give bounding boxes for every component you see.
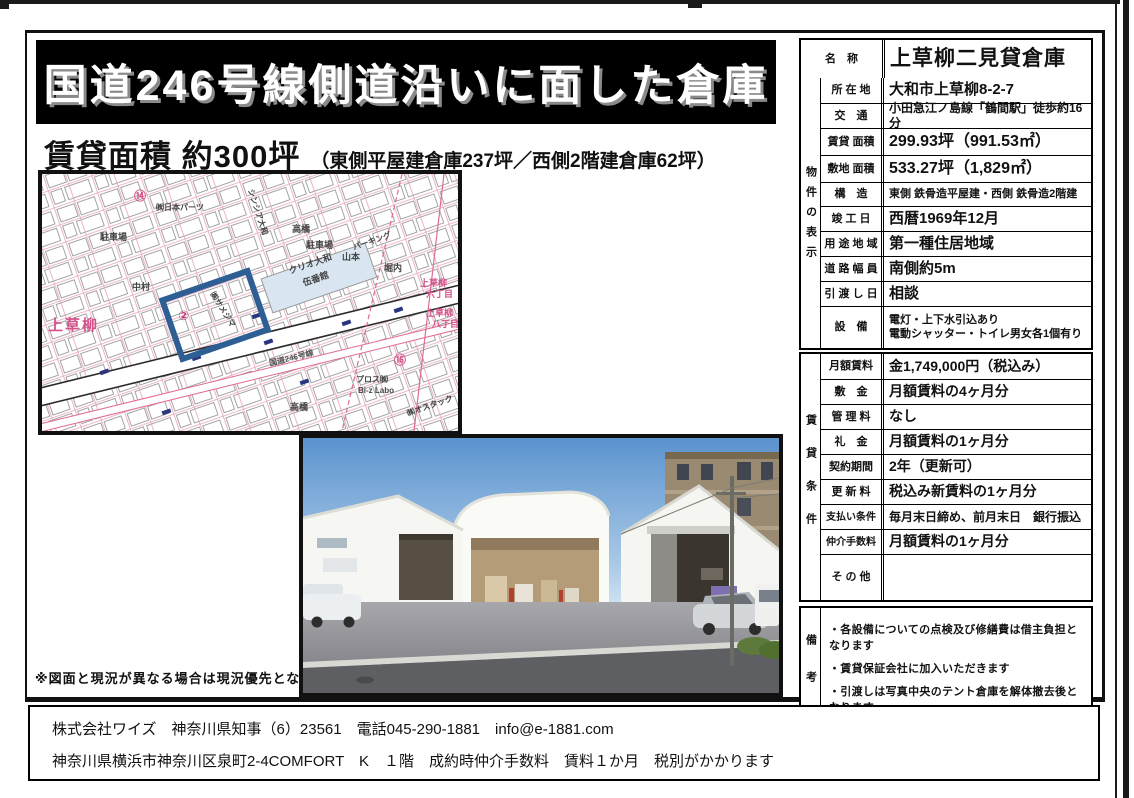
row-label: 用 途 地 域 (821, 232, 881, 256)
row-value: 税込み新賃料の1ヶ月分 (881, 480, 1091, 504)
table-row: 支払い条件 毎月末日締め、前月末日 銀行振込 (821, 504, 1091, 529)
row-label: 設 備 (821, 307, 881, 348)
agency-license-contact: 株式会社ワイズ 神奈川県知事（6）23561 電話045-290-1881 in… (52, 718, 1098, 739)
map-label-nakamura: 中村 (132, 281, 150, 292)
page-border-top (0, 0, 1120, 4)
map-label-num16: ⑯ (394, 352, 406, 367)
photo-tent-warehouse (453, 492, 609, 610)
table-row: 管 理 料 なし (821, 404, 1091, 429)
row-value: 南側約5m (881, 257, 1091, 281)
map-label-parking1: 駐車場 (100, 231, 127, 242)
row-label: 構 造 (821, 183, 881, 206)
row-value: 2年（更新可） (881, 455, 1091, 479)
row-label: 道 路 幅 員 (821, 257, 881, 281)
table-row: 竣 工 日 西暦1969年12月 (821, 206, 1091, 231)
table-row: 名 称 上草柳二見貸倉庫 (801, 40, 1091, 78)
map-label-chome6: 六丁目 (426, 288, 453, 299)
row-value: 第一種住居地域 (881, 232, 1091, 256)
row-value: 大和市上草柳8-2-7 (881, 78, 1091, 103)
table-row: 更 新 料 税込み新賃料の1ヶ月分 (821, 479, 1091, 504)
map-disclaimer: ※図面と現況が異なる場合は現況優先となります (35, 668, 342, 687)
row-value: 東側 鉄骨造平屋建・西側 鉄骨造2階建 (881, 183, 1091, 206)
map-label-takahashi: 高橋 (292, 223, 311, 234)
agency-address-fees: 神奈川県横浜市神奈川区泉町2-4COMFORT K １階 成約時仲介手数料 賃料… (52, 750, 1098, 771)
table-row: 引 渡 し 日 相談 (821, 281, 1091, 306)
map-label-chome-a: 上草柳 (420, 277, 447, 288)
row-label: 竣 工 日 (821, 207, 881, 231)
row-value: 小田急江ノ島線「鶴間駅」徒歩約16分 (881, 104, 1091, 128)
photo-van-right (755, 584, 779, 626)
row-value: なし (881, 405, 1091, 429)
remark-item: ・各設備についての点検及び修繕費は借主負担となります (829, 621, 1083, 653)
page-title: 国道246号線側道沿いに面した倉庫 (44, 51, 769, 113)
row-label: 交 通 (821, 104, 881, 128)
map-label-parking2: 駐車場 (306, 239, 333, 250)
table-row: 敷地 面積 533.27坪（1,829㎡） (821, 155, 1091, 182)
row-label: 引 渡 し 日 (821, 282, 881, 306)
row-value (881, 555, 1091, 600)
row-label: 管 理 料 (821, 405, 881, 429)
rental-conditions-table: 賃貸条件 月額賃料 金1,749,000円（税込み） 敷 金 月額賃料の4ヶ月分… (799, 352, 1093, 602)
page-border-right-inner (1115, 0, 1117, 798)
row-label: 契約期間 (821, 455, 881, 479)
row-value: 月額賃料の1ヶ月分 (881, 430, 1091, 454)
map-label-yamamoto: 山本 (342, 251, 361, 262)
map-label-nihonparts: ㈱日本パーツ (156, 202, 204, 212)
table-row: 構 造 東側 鉄骨造平屋建・西側 鉄骨造2階建 (821, 182, 1091, 206)
row-value: 毎月末日締め、前月末日 銀行振込 (881, 505, 1091, 529)
map-label-chome8: 八丁目 (431, 319, 458, 329)
table-row: 仲介手数料 月額賃料の1ヶ月分 (821, 529, 1091, 554)
row-label: 更 新 料 (821, 480, 881, 504)
row-label: 名 称 (801, 40, 882, 78)
page-border-tick (688, 0, 702, 8)
page-border-corner (0, 0, 9, 9)
table-row: 設 備 電灯・上下水引込あり 電動シャッター・トイレ男女各1個有り (821, 306, 1091, 348)
row-label: 仲介手数料 (821, 530, 881, 554)
table-row: 所 在 地 大和市上草柳8-2-7 (821, 78, 1091, 103)
row-label: 月額賃料 (821, 354, 881, 379)
map-label-num14: ⑭ (134, 188, 146, 203)
table-row: 交 通 小田急江ノ島線「鶴間駅」徒歩約16分 (821, 103, 1091, 128)
property-name: 上草柳二見貸倉庫 (882, 40, 1091, 78)
subtitle-breakdown: （東側平屋建倉庫237坪／西側2階建倉庫62坪） (310, 146, 715, 173)
table-row: 契約期間 2年（更新可） (821, 454, 1091, 479)
row-label: 賃貸 面積 (821, 129, 881, 155)
table-row: 敷 金 月額賃料の4ヶ月分 (821, 379, 1091, 404)
row-label: そ の 他 (821, 555, 881, 600)
row-value: 金1,749,000円（税込み） (881, 354, 1091, 379)
row-value: 月額賃料の4ヶ月分 (881, 380, 1091, 404)
property-table-body: 物件の表示 所 在 地 大和市上草柳8-2-7 交 通 小田急江ノ島線「鶴間駅」… (801, 78, 1091, 348)
map-label-takahashi2: 高橋 (290, 401, 309, 412)
table-row: 道 路 幅 員 南側約5m (821, 256, 1091, 281)
footer-box: 株式会社ワイズ 神奈川県知事（6）23561 電話045-290-1881 in… (28, 705, 1100, 781)
table-row: そ の 他 (821, 554, 1091, 600)
section-label-vertical: 物件の表示 (801, 78, 821, 348)
map-label-chome-a2: 上草柳 (426, 307, 453, 318)
table-row: 礼 金 月額賃料の1ヶ月分 (821, 429, 1091, 454)
map-label-bizlabo: Bi-z Labo (358, 386, 394, 395)
map-label-num2: ② (178, 308, 189, 323)
property-table: 名 称 上草柳二見貸倉庫 物件の表示 所 在 地 大和市上草柳8-2-7 交 通… (799, 38, 1093, 350)
row-label: 敷地 面積 (821, 156, 881, 182)
row-value: 相談 (881, 282, 1091, 306)
row-value: 月額賃料の1ヶ月分 (881, 530, 1091, 554)
location-map: 上草柳 ⑭ ㈱日本パーツ シンシア大和 高橋 高橋 駐車場 駐車場 中村 山本 … (38, 170, 462, 435)
row-value: 電灯・上下水引込あり 電動シャッター・トイレ男女各1個有り (881, 307, 1091, 348)
map-label-pros: プロス㈱ (356, 374, 388, 384)
photo-image (303, 438, 779, 693)
row-value: 西暦1969年12月 (881, 207, 1091, 231)
row-label: 敷 金 (821, 380, 881, 404)
row-label: 礼 金 (821, 430, 881, 454)
row-value: 299.93坪（991.53㎡） (881, 129, 1091, 155)
title-banner: 国道246号線側道沿いに面した倉庫 (36, 40, 776, 124)
map-label-horiuchi: 堀内 (384, 262, 402, 273)
map-image: 上草柳 ⑭ ㈱日本パーツ シンシア大和 高橋 高橋 駐車場 駐車場 中村 山本 … (42, 174, 458, 431)
row-label: 所 在 地 (821, 78, 881, 103)
table-row: 月額賃料 金1,749,000円（税込み） (821, 354, 1091, 379)
table-row: 賃貸 面積 299.93坪（991.53㎡） (821, 128, 1091, 155)
remark-item: ・賃貸保証会社に加入いただきます (829, 660, 1083, 676)
section-label-vertical: 賃貸条件 (801, 354, 821, 600)
property-photo (299, 434, 783, 697)
row-label: 支払い条件 (821, 505, 881, 529)
page-border-right-outer (1123, 0, 1129, 798)
row-value: 533.27坪（1,829㎡） (881, 156, 1091, 182)
table-row: 用 途 地 域 第一種住居地域 (821, 231, 1091, 256)
map-label-area: 上草柳 (48, 316, 99, 334)
